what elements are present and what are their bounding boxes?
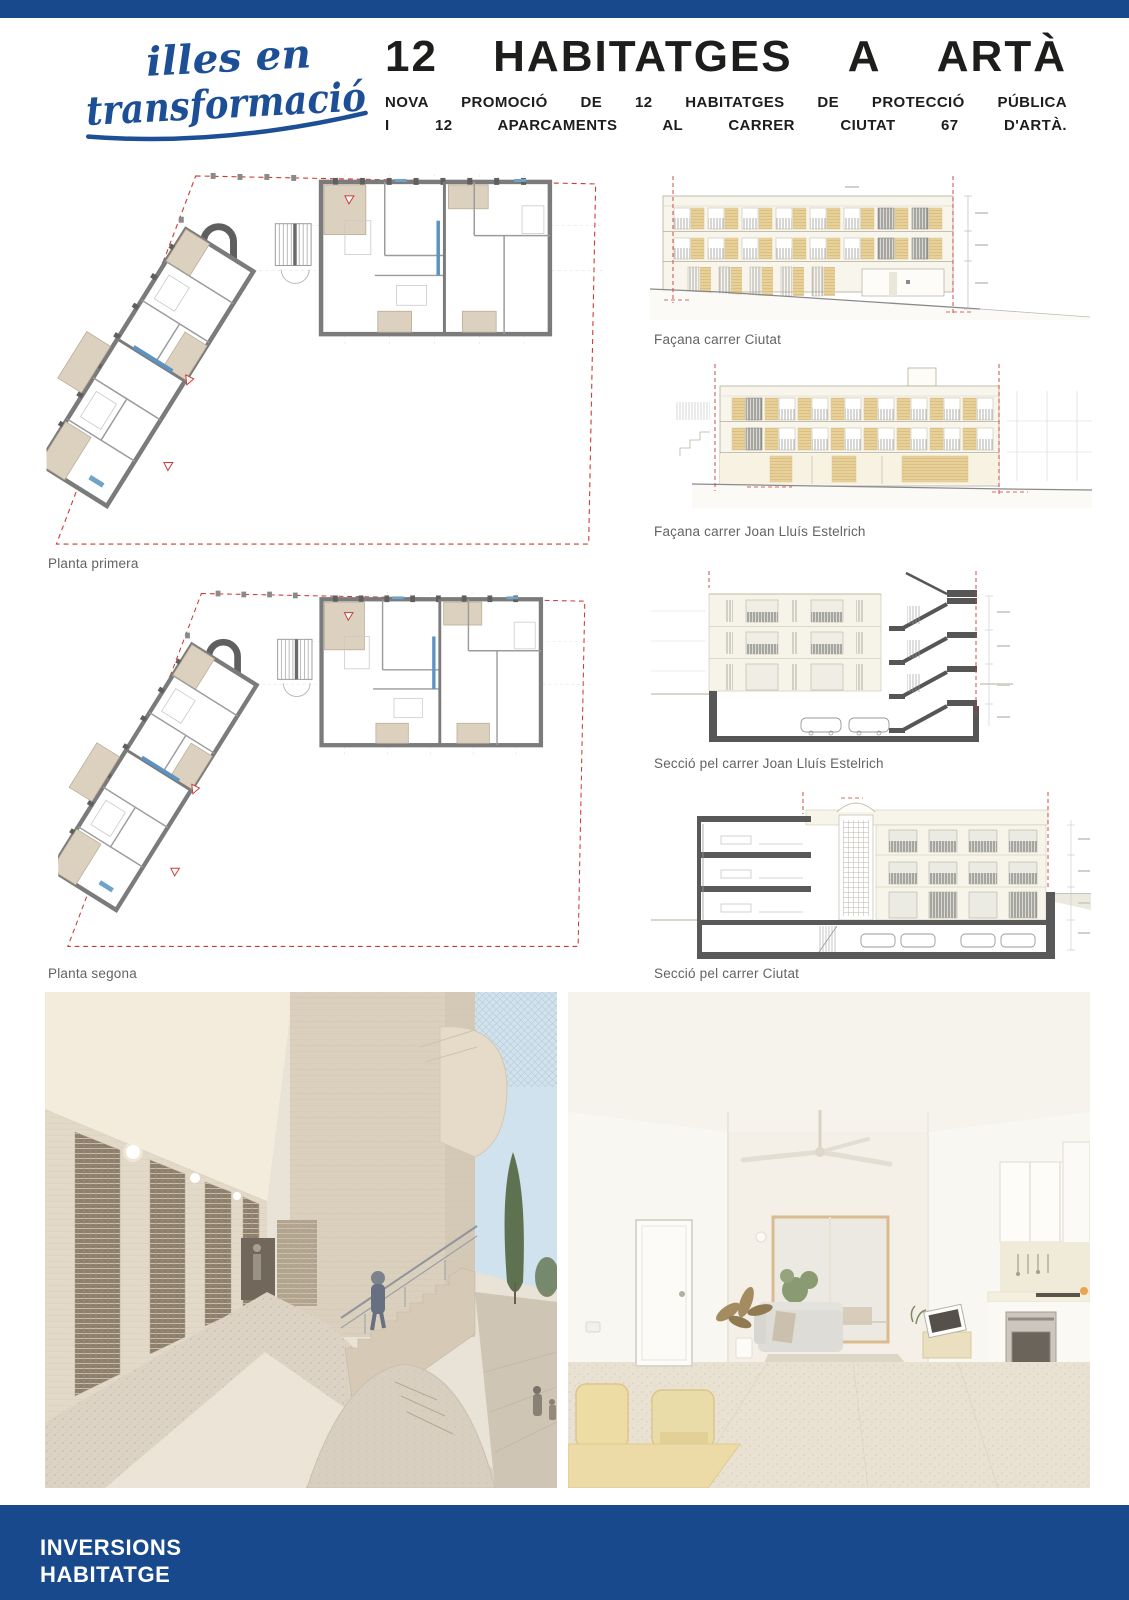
page-subtitle: NOVA PROMOCIÓ DE 12 HABITATGES DE PROTEC… bbox=[385, 92, 1067, 137]
section-ciutat-drawing bbox=[650, 780, 1092, 962]
subtitle-line-2: I 12 APARCAMENTS AL CARRER CIUTAT 67 D'A… bbox=[385, 115, 1067, 138]
section2-stair-tower bbox=[837, 803, 875, 920]
title-word-1: 12 bbox=[385, 34, 438, 80]
header-text-block: 12 HABITATGES A ARTÀ NOVA PROMOCIÓ DE 12… bbox=[385, 34, 1067, 137]
render-interior-photo bbox=[568, 992, 1090, 1488]
top-accent-bar bbox=[0, 0, 1129, 18]
label-seccio-estelrich: Secció pel carrer Joan Lluís Estelrich bbox=[654, 756, 884, 771]
org-line-1: INVERSIONS bbox=[40, 1535, 182, 1562]
title-word-4: ARTÀ bbox=[937, 34, 1067, 80]
floorplan-planta-primera bbox=[45, 166, 620, 554]
org-line-2: HABITATGE bbox=[40, 1562, 182, 1589]
label-seccio-ciutat: Secció pel carrer Ciutat bbox=[654, 966, 799, 981]
label-facana-ciutat: Façana carrer Ciutat bbox=[654, 332, 781, 347]
section1-context bbox=[651, 611, 706, 671]
section1-stair-cut bbox=[889, 573, 977, 733]
render2-dining bbox=[568, 1384, 740, 1488]
section1-dimension-lines bbox=[985, 596, 1010, 726]
subtitle-line-1: NOVA PROMOCIÓ DE 12 HABITATGES DE PROTEC… bbox=[385, 92, 1067, 115]
section2-dimension-lines bbox=[1067, 820, 1090, 950]
logo-line2: transformació bbox=[85, 73, 367, 135]
logo-script-icon: illes en transformació bbox=[70, 26, 375, 146]
section1-elevation bbox=[709, 594, 881, 691]
title-word-3: A bbox=[848, 34, 882, 80]
facade-carrer-ciutat-drawing bbox=[650, 168, 1090, 320]
render-exterior-photo bbox=[45, 992, 557, 1488]
label-facana-estelrich: Façana carrer Joan Lluís Estelrich bbox=[654, 524, 866, 539]
poster-page: illes en transformació 12 HABITATGES A A… bbox=[0, 0, 1129, 1600]
section1-basement bbox=[651, 684, 1013, 742]
page-title: 12 HABITATGES A ARTÀ bbox=[385, 34, 1067, 80]
label-planta-segona: Planta segona bbox=[48, 966, 137, 981]
facade2-windows bbox=[720, 398, 999, 484]
org-name: INVERSIONS HABITATGE bbox=[40, 1535, 182, 1589]
section-estelrich-drawing bbox=[650, 566, 1092, 746]
facade-carrer-estelrich-drawing bbox=[652, 356, 1092, 508]
label-planta-primera: Planta primera bbox=[48, 556, 139, 571]
floorplan-planta-segona bbox=[45, 584, 620, 956]
title-word-2: HABITATGES bbox=[493, 34, 792, 80]
section2-cut-floors bbox=[697, 816, 811, 927]
illes-en-transformacio-logo: illes en transformació bbox=[70, 26, 375, 146]
